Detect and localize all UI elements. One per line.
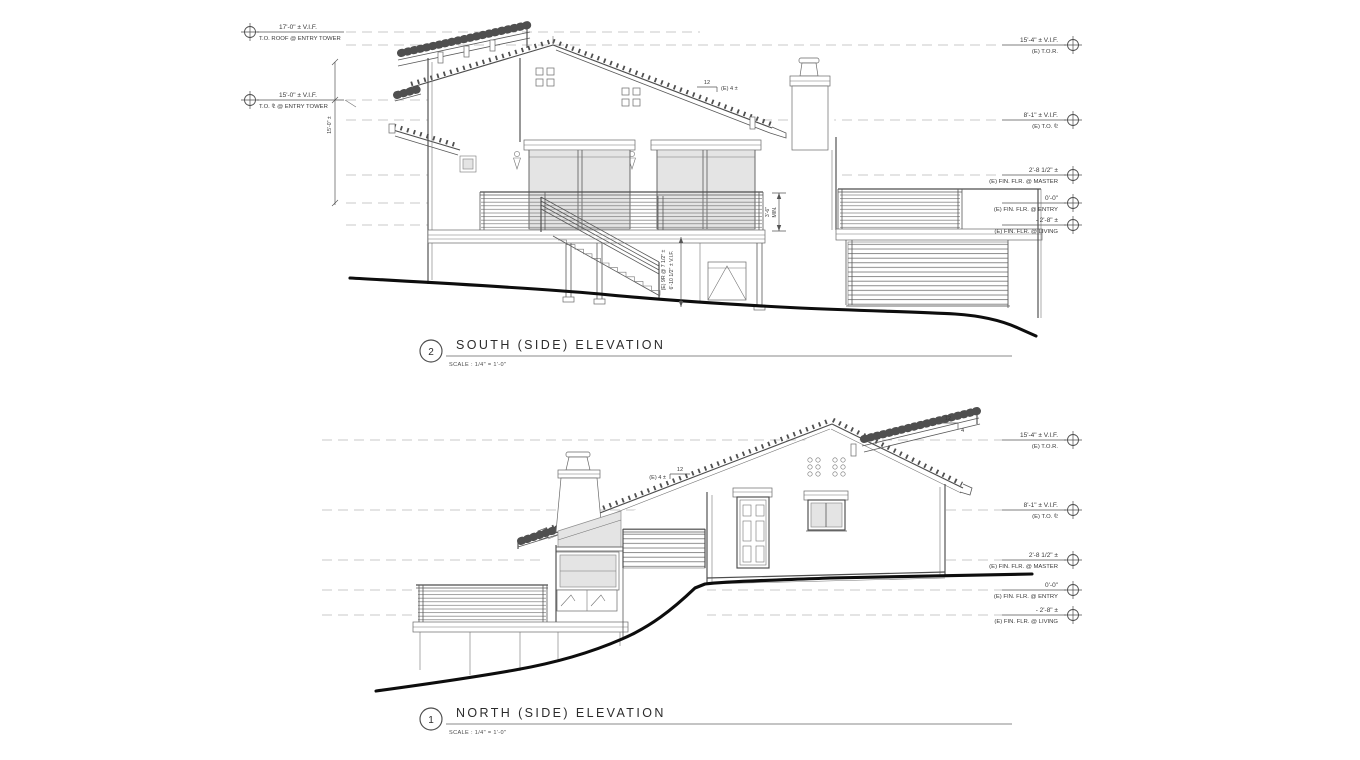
south-pitch-annotation: 12 (E) 4 ± xyxy=(697,80,738,92)
stair-note-1: (E) 9R @ 7 1/2" ± xyxy=(661,249,667,290)
south-stair-dimension: (E) 9R @ 7 1/2" ± 6'-10 1/2" ± V.I.F. xyxy=(661,237,683,307)
north-right-datum-4: - 2'-8" ± (E) FIN. FLR. @ LIVING xyxy=(994,606,1082,625)
datum-value: 2'-8 1/2" ± xyxy=(1029,167,1059,174)
north-right-datum-1: 8'-1" ± V.I.F. (E) T.O. ⅊ xyxy=(1002,501,1082,520)
south-scale: SCALE : 1/4" = 1'-0" xyxy=(449,362,506,368)
datum-label: (E) FIN. FLR. @ ENTRY xyxy=(994,594,1058,600)
datum-label: (E) FIN. FLR. @ LIVING xyxy=(994,619,1058,625)
north-right-datum-2: 2'-8 1/2" ± (E) FIN. FLR. @ MASTER xyxy=(989,551,1082,570)
detail-number: 2 xyxy=(428,347,434,358)
datum-label: (E) T.O.R. xyxy=(1032,49,1058,55)
datum-label: (E) T.O. ⅊ xyxy=(1032,123,1058,130)
south-left-datum-1: 15'-0" ± V.I.F. T.O. ⅊ @ ENTRY TOWER xyxy=(241,91,344,110)
north-right-datum-3: 0'-0" (E) FIN. FLR. @ ENTRY xyxy=(994,581,1082,600)
south-left-datum-0: 17'-0" ± V.I.F. T.O. ROOF @ ENTRY TOWER xyxy=(241,23,344,42)
north-right-datum-0: 15'-4" ± V.I.F. (E) T.O.R. xyxy=(1002,431,1082,450)
south-elevation: 12 (E) 4 ± 15'-0" ± 3'-6" MIN. (E) 9R @ … xyxy=(241,23,1082,368)
elevations-svg: 12 (E) 4 ± 15'-0" ± 3'-6" MIN. (E) 9R @ … xyxy=(0,0,1360,760)
south-building xyxy=(350,25,1042,336)
south-wall-vent-inner xyxy=(463,159,473,169)
north-title: NORTH (SIDE) ELEVATION xyxy=(456,706,666,720)
datum-marker-icon xyxy=(1064,194,1082,212)
datum-value: 8'-1" ± V.I.F. xyxy=(1024,502,1059,509)
datum-value: 15'-4" ± V.I.F. xyxy=(1020,37,1058,44)
south-right-datum-0: 15'-4" ± V.I.F. (E) T.O.R. xyxy=(1002,36,1082,55)
south-right-datum-1: 8'-1" ± V.I.F. (E) T.O. ⅊ xyxy=(1002,111,1082,130)
datum-value: 0'-0" xyxy=(1045,195,1059,202)
south-tower-dimension: 15'-0" ± xyxy=(327,59,356,206)
datum-label: (E) FIN. FLR. @ MASTER xyxy=(989,564,1058,570)
datum-value: - 2'-8" ± xyxy=(1036,217,1059,224)
pitch-rise: (E) 4 ± xyxy=(721,86,738,92)
datum-marker-icon xyxy=(1064,36,1082,54)
north-slat-screen xyxy=(623,529,705,568)
detail-number: 1 xyxy=(428,715,434,726)
stair-note-2: 6'-10 1/2" ± V.I.F. xyxy=(669,251,675,290)
pitch-run: 12 xyxy=(704,80,710,86)
north-title-block: 1 NORTH (SIDE) ELEVATION SCALE : 1/4" = … xyxy=(420,706,1012,736)
datum-marker-icon xyxy=(241,23,259,41)
south-right-datum-2: 2'-8 1/2" ± (E) FIN. FLR. @ MASTER xyxy=(989,166,1082,185)
datum-marker-icon xyxy=(1064,431,1082,449)
datum-value: 15'-0" ± V.I.F. xyxy=(279,92,317,99)
pitch-rise: 4 xyxy=(961,428,964,434)
datum-label: (E) FIN. FLR. @ LIVING xyxy=(994,229,1058,235)
datum-marker-icon xyxy=(241,91,259,109)
north-building xyxy=(376,408,1032,691)
datum-marker-icon xyxy=(1064,606,1082,624)
datum-value: 8'-1" ± V.I.F. xyxy=(1024,112,1059,119)
datum-marker-icon xyxy=(1064,551,1082,569)
pitch-run: 12 xyxy=(677,467,683,473)
datum-label: (E) FIN. FLR. @ ENTRY xyxy=(994,207,1058,213)
pitch-run: 12 xyxy=(945,416,951,422)
datum-value: 17'-0" ± V.I.F. xyxy=(279,24,317,31)
north-scale: SCALE : 1/4" = 1'-0" xyxy=(449,730,506,736)
datum-value: 0'-0" xyxy=(1045,582,1059,589)
datum-label: T.O. ⅊ @ ENTRY TOWER xyxy=(259,103,328,110)
datum-value: - 2'-8" ± xyxy=(1036,607,1059,614)
south-title: SOUTH (SIDE) ELEVATION xyxy=(456,338,665,352)
datum-value: 2'-8 1/2" ± xyxy=(1029,552,1059,559)
datum-marker-icon xyxy=(1064,581,1082,599)
south-deck-railing xyxy=(480,192,763,232)
tower-dim-text: 15'-0" ± xyxy=(327,116,333,134)
north-elevation: (E) 4 ± 12 12 4 15'-4" ± V.I.F. (E) T.O.… xyxy=(322,408,1082,736)
rail-dim-min: MIN. xyxy=(772,207,778,218)
pitch-rise: (E) 4 ± xyxy=(649,475,666,481)
datum-label: (E) T.O.R. xyxy=(1032,444,1058,450)
north-pitch-left: (E) 4 ± 12 xyxy=(649,467,690,481)
rail-dim-text: 3'-6" xyxy=(765,207,771,217)
datum-marker-icon xyxy=(1064,501,1082,519)
datum-label: (E) T.O. ⅊ xyxy=(1032,513,1058,520)
drawing-sheet: 12 (E) 4 ± 15'-0" ± 3'-6" MIN. (E) 9R @ … xyxy=(0,0,1360,760)
datum-marker-icon xyxy=(1064,216,1082,234)
south-title-block: 2 SOUTH (SIDE) ELEVATION SCALE : 1/4" = … xyxy=(420,338,1012,368)
datum-marker-icon xyxy=(1064,111,1082,129)
datum-label: (E) FIN. FLR. @ MASTER xyxy=(989,179,1058,185)
datum-marker-icon xyxy=(1064,166,1082,184)
datum-value: 15'-4" ± V.I.F. xyxy=(1020,432,1058,439)
datum-label: T.O. ROOF @ ENTRY TOWER xyxy=(259,36,341,42)
